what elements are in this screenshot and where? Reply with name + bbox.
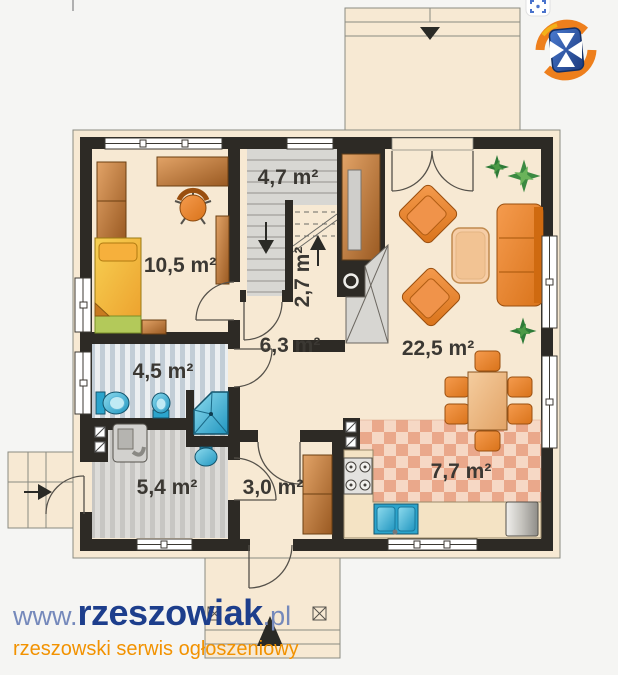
terrace-door-opening: [392, 138, 473, 150]
toilet: [96, 392, 129, 414]
room-label-bathroom: 4,5 m²: [133, 360, 194, 383]
stove: [344, 458, 372, 494]
entrance-opening: [250, 539, 293, 551]
room-label-utility-room: 5,4 m²: [137, 476, 198, 499]
tall-cabinet: [216, 216, 229, 284]
boiler: [113, 424, 147, 462]
side-steps: [8, 452, 73, 528]
room-label-vestibule: 3,0 m²: [243, 476, 304, 499]
watermark-www: www.: [13, 601, 78, 631]
pillow: [99, 243, 137, 261]
blanket: [95, 316, 141, 333]
window: [542, 356, 557, 448]
dresser: [142, 320, 166, 334]
screenshot-icon[interactable]: [526, 0, 550, 16]
bidet: [152, 393, 170, 418]
dining-chair: [508, 404, 532, 424]
side-door-opening: [78, 462, 92, 512]
watermark-tagline: rzeszowski serwis ogłoszeniowy: [13, 639, 299, 659]
window: [105, 138, 222, 149]
kitchen-sink: [374, 504, 418, 535]
desk: [157, 157, 228, 186]
dining-chair: [475, 351, 500, 371]
coffee-table: [452, 228, 489, 283]
dining-chair: [508, 377, 532, 397]
window: [287, 138, 333, 149]
window: [137, 539, 192, 550]
floorplan-image: 10,5 m² 4,7 m² 2,7 m² 6,3 m² 22,5 m² 4,5…: [0, 0, 618, 675]
terrace: [345, 8, 520, 137]
watermark-brand: rzeszowiak: [78, 592, 263, 633]
dining-chair: [445, 404, 469, 424]
vestibule-cabinet: [303, 455, 332, 534]
fireplace-niche: [348, 170, 361, 250]
watermark-tld: .pl: [263, 601, 292, 631]
room-label-living-room: 22,5 m²: [402, 337, 474, 360]
watermark-url: www.rzeszowiak.pl: [13, 596, 299, 638]
sofa: [497, 204, 543, 306]
window: [75, 352, 91, 414]
fridge: [506, 502, 538, 536]
dining-chair: [445, 377, 469, 397]
bed: [95, 238, 141, 333]
window: [542, 236, 557, 328]
dining-chair: [475, 431, 500, 451]
porch-lamp-symbol: [313, 607, 326, 620]
utility-panel: [92, 423, 108, 462]
floorplan-page: 10,5 m² 4,7 m² 2,7 m² 6,3 m² 22,5 m² 4,5…: [0, 0, 618, 675]
window: [75, 278, 91, 332]
room-label-kitchen: 7,7 m²: [431, 460, 492, 483]
room-label-bedroom: 10,5 m²: [144, 254, 216, 277]
window: [388, 539, 477, 550]
room-label-staircase: 4,7 m²: [258, 166, 319, 189]
room-label-staircase-flight: 2,7 m²: [291, 247, 314, 308]
vent-shaft: [343, 418, 360, 455]
room-label-hall: 6,3 m²: [260, 334, 321, 357]
dining-table: [468, 372, 507, 430]
watermark: www.rzeszowiak.pl rzeszowski serwis ogło…: [13, 596, 299, 659]
